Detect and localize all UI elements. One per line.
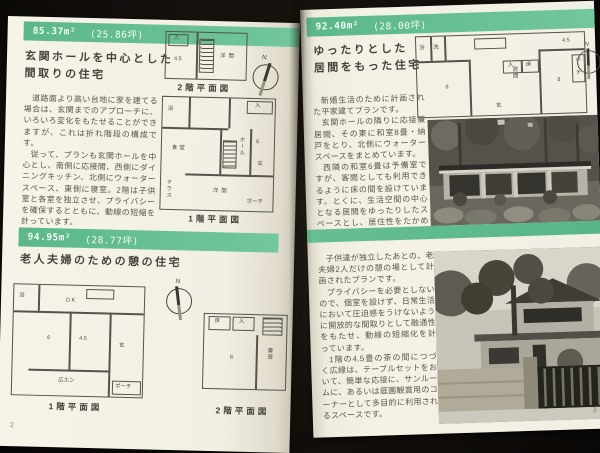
plan-caption: 2階平面図 bbox=[201, 404, 283, 418]
page-number: 3 bbox=[593, 407, 597, 414]
north-label: N bbox=[175, 278, 180, 285]
room-label: 洋間 bbox=[220, 53, 237, 60]
wall bbox=[188, 97, 190, 127]
wall bbox=[249, 129, 252, 175]
room-label: 6 bbox=[47, 335, 50, 342]
wall bbox=[68, 312, 71, 370]
room-label: 洗 bbox=[433, 45, 439, 52]
wall bbox=[255, 335, 258, 389]
room-label: 4.5 bbox=[174, 56, 182, 63]
room-label: ポーチ bbox=[246, 199, 263, 206]
room-label: 浴 bbox=[19, 292, 25, 299]
room-label: 8 bbox=[230, 355, 233, 362]
wall bbox=[185, 173, 273, 177]
compass: N bbox=[252, 54, 279, 101]
section-title: 老人夫婦のための憩の住宅 bbox=[20, 251, 280, 274]
paragraph: プライバシーを必要としないので、個室を設けず、日常生活において圧迫感をうけないよ… bbox=[319, 284, 437, 355]
wall bbox=[469, 60, 472, 116]
room-label: 入 bbox=[239, 319, 245, 326]
floor-plan-1f: 浴 入 食堂 6 ホール 玄 洋間 テラス ポーチ bbox=[159, 96, 276, 213]
floor-plan: 浴 洗 6 居間 8 4.5 入 床 玄 ポーチ bbox=[415, 31, 587, 118]
kitchen-counter bbox=[474, 38, 506, 50]
body-text: 道路面より高い台地に家を建てる場合は、玄関までのアプローチに、いろいろ変化をもた… bbox=[21, 92, 158, 230]
room-label: 床 bbox=[215, 318, 221, 325]
room-label: 書斎 bbox=[266, 347, 273, 360]
wall bbox=[430, 37, 432, 61]
room-label: 食堂 bbox=[172, 145, 187, 152]
room-label: D.K bbox=[66, 298, 75, 305]
floor-plan-2f: 入 4.5 洋間 bbox=[165, 31, 248, 81]
body-text: 子供達が独立したあとの、老夫婦2人だけの憩の場として計画されたプランです。 プラ… bbox=[318, 250, 439, 422]
plan-caption: 2階平面図 bbox=[156, 81, 252, 95]
paragraph: 子供達が独立したあとの、老夫婦2人だけの憩の場として計画されたプランです。 bbox=[318, 250, 435, 287]
left-page: 85.37m² (25.86坪) 玄関ホールを中心とした 間取りの住宅 道路面よ… bbox=[0, 16, 300, 453]
body-text: 新婚生活のために計画された平家建てプランです。 玄関ホールの隣りに応接兼居間、そ… bbox=[313, 92, 430, 241]
north-label: N bbox=[585, 41, 589, 47]
wall bbox=[14, 310, 144, 315]
wall bbox=[162, 127, 228, 130]
room-label: 玄 bbox=[119, 343, 125, 350]
room-label: 6 bbox=[445, 84, 448, 91]
wall bbox=[228, 98, 230, 128]
floor-plan-1f: 浴 D.K 6 4.5 広エン 玄 ポーチ bbox=[11, 283, 146, 398]
compass: N bbox=[166, 278, 193, 325]
tsubo-value: (28.00坪) bbox=[373, 17, 427, 33]
wall bbox=[538, 49, 542, 113]
area-value: 94.95m² bbox=[27, 232, 71, 244]
paragraph: 1階の4.5畳の茶の間につづく広縁は、テーブルセットをおいて、簡単な応接に、サン… bbox=[321, 351, 439, 422]
floor-plan-2f: 床 入 8 書斎 bbox=[202, 313, 288, 391]
room-label: 4.5 bbox=[562, 38, 570, 45]
stairs-icon bbox=[262, 317, 282, 335]
room-label: ホール bbox=[238, 137, 245, 157]
wall bbox=[108, 313, 112, 397]
area-bar-bottom-left: 94.95m² (28.77坪) bbox=[18, 227, 278, 252]
house-photo-2 bbox=[434, 247, 600, 424]
compass: N bbox=[576, 41, 600, 83]
plan-caption: 1階平面図 bbox=[159, 212, 271, 227]
room-label: 玄 bbox=[496, 103, 502, 110]
paragraph: 従って、プランも玄関ホールを中心とし、南側に応接間、西側にダイニングキッチン、北… bbox=[21, 148, 157, 230]
area-value: 92.40m² bbox=[315, 20, 359, 32]
house-photo-1 bbox=[428, 115, 600, 226]
room-label: ポーチ bbox=[115, 384, 132, 391]
tsubo-value: (28.77坪) bbox=[85, 231, 139, 246]
room-label: 6 bbox=[256, 139, 259, 146]
room-label: 洋間 bbox=[213, 188, 230, 195]
page-number: 2 bbox=[10, 422, 14, 429]
room-label: 玄 bbox=[257, 161, 263, 168]
wall bbox=[444, 36, 446, 60]
room-label: 床 bbox=[526, 62, 532, 69]
room-label: 入 bbox=[255, 103, 261, 110]
book-spread: 85.37m² (25.86坪) 玄関ホールを中心とした 間取りの住宅 道路面よ… bbox=[0, 0, 600, 453]
stairs-icon bbox=[199, 39, 215, 73]
room-label: 浴 bbox=[419, 45, 425, 52]
kitchen-counter bbox=[86, 289, 114, 300]
room-label: 4.5 bbox=[79, 336, 87, 343]
stairs-icon bbox=[222, 140, 237, 168]
right-page: 92.40m² (28.00坪) ゆったりとした 居間をもった住宅 浴 洗 6 … bbox=[300, 1, 600, 438]
area-bar-top-left: 85.37m² (25.86坪) bbox=[23, 21, 299, 47]
paragraph: 玄関ホールの隣りに応接兼居間、その東に和室8畳・納戸をとり、北側にウォータースペ… bbox=[313, 115, 426, 163]
room-label: 8 bbox=[557, 77, 560, 84]
room-label: 広エン bbox=[58, 377, 75, 384]
room-label: テラス bbox=[165, 179, 172, 199]
room-label: 入 bbox=[173, 35, 179, 42]
plan-caption: 1階平面図 bbox=[10, 399, 140, 414]
area-value: 85.37m² bbox=[33, 26, 77, 38]
room-label: 浴 bbox=[168, 106, 174, 113]
wall bbox=[417, 60, 469, 63]
wall bbox=[28, 369, 108, 372]
tsubo-value: (25.86坪) bbox=[90, 26, 144, 41]
wall bbox=[38, 285, 40, 311]
paragraph: 道路面より高い台地に家を建てる場合は、玄関までのアプローチに、いろいろ変化をもた… bbox=[23, 92, 158, 151]
north-label: N bbox=[262, 54, 267, 61]
room-label: 入 bbox=[508, 62, 514, 69]
